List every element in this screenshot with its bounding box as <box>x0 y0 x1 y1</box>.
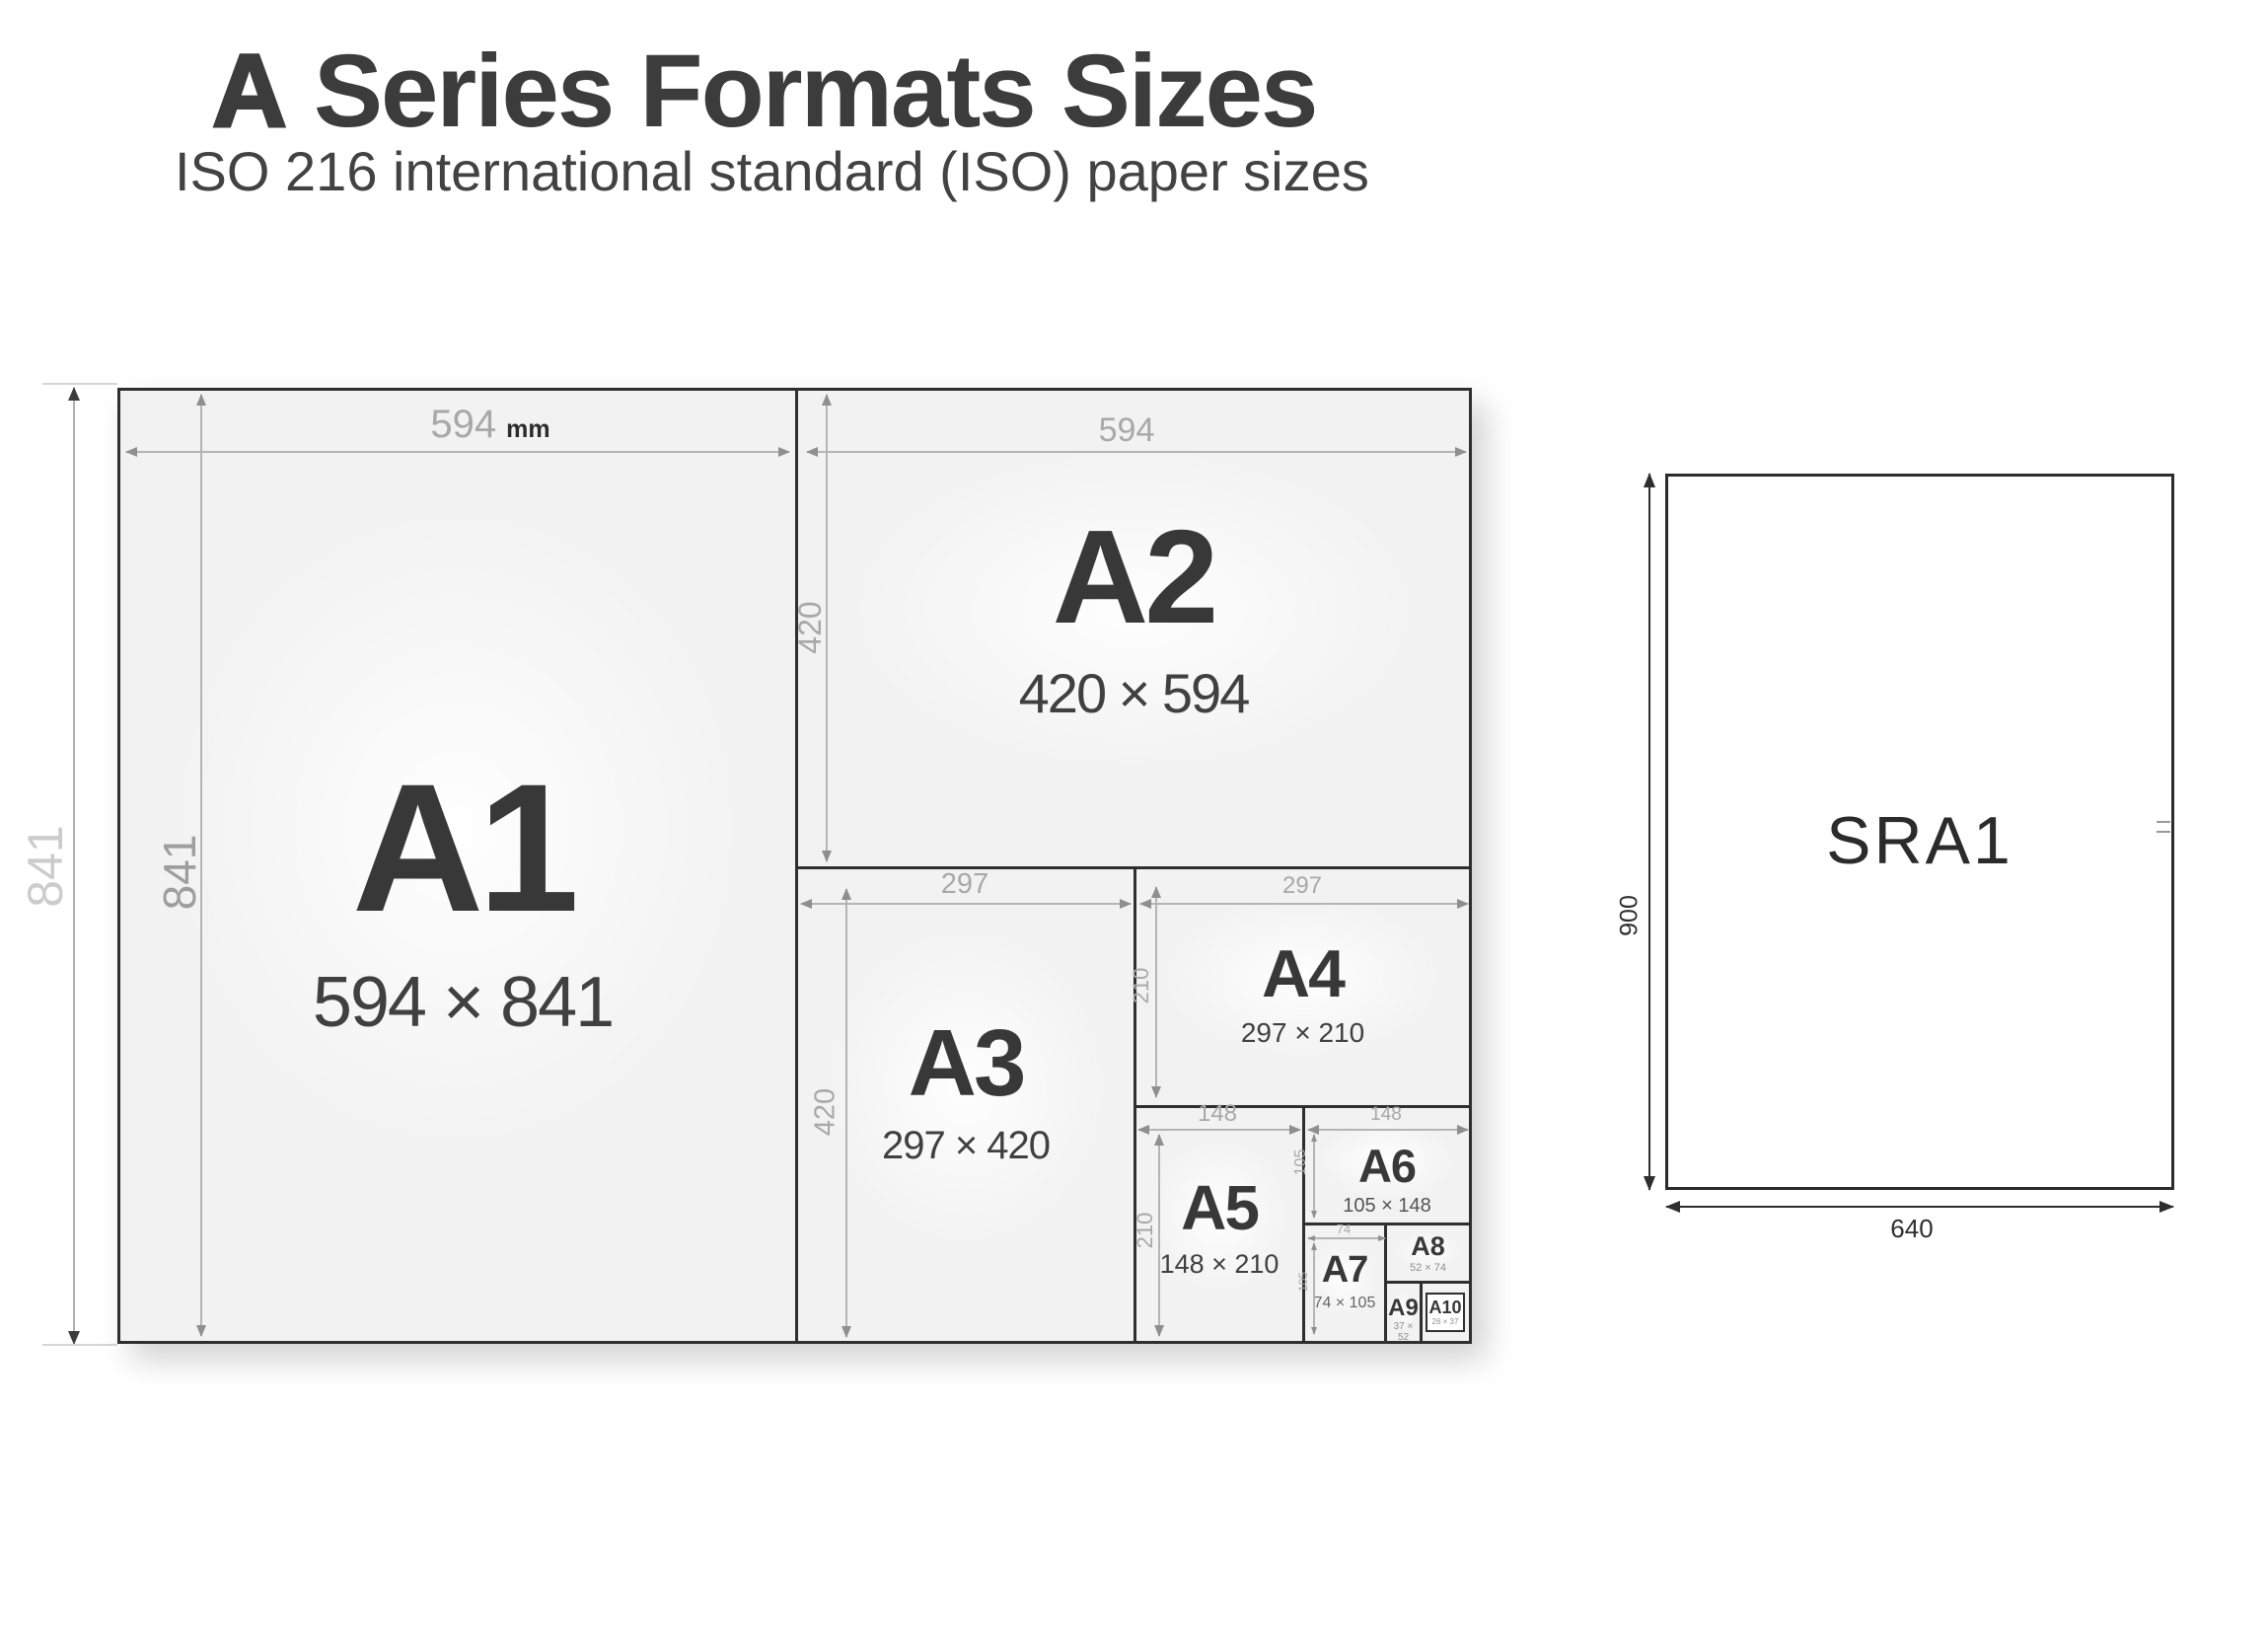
a9-cell: A9 37 × 52 <box>1387 1284 1423 1341</box>
a3-label: A3 <box>798 1014 1134 1114</box>
a2-label: A2 <box>798 507 1469 647</box>
page-title-rest: Series Formats Sizes <box>287 34 1317 149</box>
a3-cell: A3 297 × 420 <box>798 869 1136 1341</box>
a2-width-dim <box>807 451 1466 453</box>
a4-width-dim-label: 297 <box>1282 874 1322 898</box>
a5-size: 148 × 210 <box>1136 1249 1302 1280</box>
unit-label: mm <box>506 415 549 443</box>
a1-height-dim-label: 841 <box>157 835 202 911</box>
extension-line-top <box>42 383 117 385</box>
a7-height-dim <box>1313 1243 1315 1334</box>
page-subtitle: ISO 216 international standard (ISO) pap… <box>175 143 1369 201</box>
a5-width-dim-label: 148 <box>1198 1102 1237 1126</box>
a9-size: 37 × 52 <box>1387 1321 1420 1343</box>
outer-height-dim-label: 841 <box>21 825 70 907</box>
a6-height-dim-label: 105 <box>1293 1150 1309 1176</box>
a2-size: 420 × 594 <box>798 661 1469 725</box>
a10-size: 26 × 37 <box>1432 1317 1459 1326</box>
sra1-width-dim-label: 640 <box>1890 1216 1933 1241</box>
a5-height-dim <box>1158 1135 1160 1336</box>
a1-label: A1 <box>130 753 795 944</box>
a7-cell: A7 74 × 105 <box>1305 1225 1387 1341</box>
page-title-accent: A <box>212 34 287 149</box>
sra1-sheet: SRA1 <box>1665 474 2174 1190</box>
a3-width-dim <box>801 903 1131 905</box>
a10-label: A10 <box>1428 1298 1461 1317</box>
a7-width-dim-label: 74 <box>1337 1223 1351 1235</box>
sra1-edge-tick-bottom <box>2157 831 2170 833</box>
extension-line-bottom <box>42 1344 117 1346</box>
a4-height-dim <box>1155 887 1157 1097</box>
a1-width-dim-label: 594mm <box>430 405 549 444</box>
sra1-height-dim-label: 900 <box>1618 895 1643 936</box>
a6-label: A6 <box>1305 1142 1469 1190</box>
a5-width-dim <box>1138 1129 1300 1131</box>
sra1-edge-tick-top <box>2157 821 2170 823</box>
a2-width-dim-label: 594 <box>1099 413 1155 447</box>
a4-label: A4 <box>1136 939 1469 1009</box>
a1-size: 594 × 841 <box>130 962 795 1043</box>
a2-height-dim-label: 420 <box>794 601 826 653</box>
a7-height-dim-label: 105 <box>1297 1272 1309 1292</box>
outer-height-dim <box>73 388 75 1344</box>
a6-width-dim-label: 148 <box>1370 1105 1402 1124</box>
a6-width-dim <box>1308 1129 1468 1131</box>
a7-width-dim <box>1308 1237 1385 1239</box>
a2-cell: A2 420 × 594 <box>798 391 1469 869</box>
a3-height-dim-label: 420 <box>812 1088 841 1136</box>
a6-height-dim <box>1313 1135 1315 1218</box>
a9-label: A9 <box>1387 1296 1420 1320</box>
a10-cell: A10 26 × 37 <box>1423 1284 1469 1341</box>
a3-width-dim-label: 297 <box>941 870 988 899</box>
a8-size: 52 × 74 <box>1387 1262 1469 1274</box>
a6-size: 105 × 148 <box>1305 1195 1469 1218</box>
sra1-label: SRA1 <box>1668 802 2171 879</box>
page: A Series Formats Sizes ISO 216 internati… <box>0 0 2268 1632</box>
a4-cell: A4 297 × 210 <box>1136 869 1469 1108</box>
a4-height-dim-label: 210 <box>1131 968 1152 1004</box>
a7-size: 74 × 105 <box>1305 1295 1384 1312</box>
a-series-diagram: A1 594 × 841 A2 420 × 594 A3 297 × 420 A… <box>117 388 1472 1344</box>
sra1-height-dim <box>1648 474 1650 1190</box>
a4-width-dim <box>1140 903 1468 905</box>
a4-size: 297 × 210 <box>1136 1017 1469 1049</box>
a7-label: A7 <box>1305 1251 1384 1291</box>
sra1-width-dim <box>1666 1206 2173 1208</box>
a10-sheet-outline: A10 26 × 37 <box>1426 1293 1465 1332</box>
a5-height-dim-label: 210 <box>1134 1213 1156 1249</box>
page-title: A Series Formats Sizes <box>212 39 1316 143</box>
a1-width-dim <box>126 451 789 453</box>
a8-cell: A8 52 × 74 <box>1387 1225 1469 1284</box>
a8-label: A8 <box>1387 1232 1469 1260</box>
a6-cell: A6 105 × 148 <box>1305 1108 1469 1225</box>
a3-size: 297 × 420 <box>798 1124 1134 1168</box>
a3-height-dim <box>845 889 847 1337</box>
a5-label: A5 <box>1136 1175 1302 1241</box>
a1-cell: A1 594 × 841 <box>120 391 798 1341</box>
